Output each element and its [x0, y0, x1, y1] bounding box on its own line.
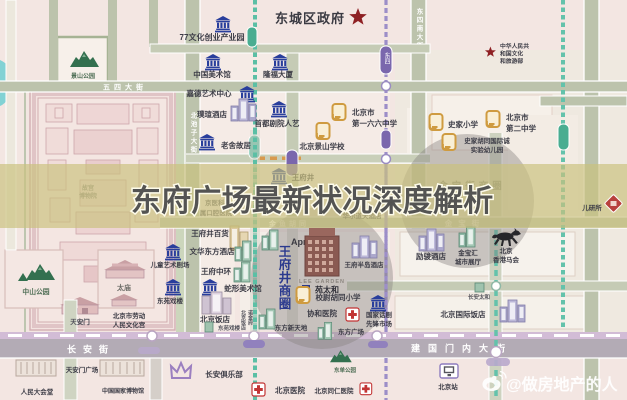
svg-text:北京景山学校: 北京景山学校	[300, 141, 345, 151]
svg-text:蛇形美术馆: 蛇形美术馆	[224, 283, 262, 293]
svg-text:圈: 圈	[279, 296, 292, 311]
svg-text:第一六六中学: 第一六六中学	[352, 118, 397, 128]
svg-text:第二中学: 第二中学	[506, 123, 536, 133]
svg-text:老舍故居: 老舍故居	[220, 140, 251, 150]
svg-text:长安太和: 长安太和	[468, 293, 491, 301]
svg-text:励骏酒店: 励骏酒店	[416, 251, 446, 261]
svg-text:校尉胡同小学: 校尉胡同小学	[316, 292, 361, 302]
svg-text:中华人民共: 中华人民共	[500, 42, 529, 50]
svg-text:景山公园: 景山公园	[70, 72, 95, 80]
svg-text:北京饭店: 北京饭店	[200, 314, 230, 324]
svg-text:史家小学: 史家小学	[448, 119, 478, 129]
svg-text:东府广场最新状况深度解析: 东府广场最新状况深度解析	[131, 184, 493, 218]
svg-text:王府井百货: 王府井百货	[191, 228, 229, 238]
svg-text:北京市: 北京市	[352, 107, 375, 117]
svg-text:文华东方酒店: 文华东方酒店	[190, 246, 235, 256]
svg-text:人民文化宫: 人民文化宫	[113, 320, 146, 329]
svg-text:人民大会堂: 人民大会堂	[21, 387, 54, 396]
svg-text:和国文化: 和国文化	[499, 50, 523, 58]
svg-text:北京医院: 北京医院	[275, 385, 305, 395]
svg-text:王: 王	[279, 245, 292, 259]
svg-text:金宝汇: 金宝汇	[457, 248, 478, 257]
svg-text:北京站: 北京站	[438, 382, 458, 391]
svg-text:儿童艺术剧场: 儿童艺术剧场	[150, 260, 191, 269]
svg-text:实验幼儿园: 实验幼儿园	[471, 145, 504, 154]
svg-text:北京市劳动: 北京市劳动	[113, 311, 146, 320]
svg-text:城市展厅: 城市展厅	[455, 257, 482, 266]
svg-text:@做房地产的人: @做房地产的人	[506, 375, 619, 394]
svg-text:史家胡同国际诚: 史家胡同国际诚	[464, 136, 510, 145]
svg-text:中国国家博物馆: 中国国家博物馆	[102, 387, 144, 395]
svg-text:王府中环: 王府中环	[201, 266, 231, 276]
svg-text:太庙: 太庙	[117, 283, 131, 292]
svg-text:商: 商	[279, 283, 292, 298]
svg-text:长安街: 长安街	[67, 344, 115, 355]
svg-text:国家话剧: 国家话剧	[366, 310, 393, 319]
svg-text:LEE GARDEN: LEE GARDEN	[299, 279, 345, 285]
svg-text:东方新天地: 东方新天地	[275, 323, 308, 332]
svg-text:北京: 北京	[500, 246, 514, 255]
svg-text:东单公园: 东单公园	[334, 366, 357, 374]
svg-text:五四大街: 五四大街	[103, 83, 147, 92]
svg-text:天安门广场: 天安门广场	[66, 365, 99, 374]
svg-text:北京饭店: 北京饭店	[240, 309, 247, 331]
svg-text:中山公园: 中山公园	[22, 287, 49, 296]
svg-text:东方广场: 东方广场	[338, 327, 365, 336]
svg-text:隆福大厦: 隆福大厦	[263, 69, 293, 79]
svg-text:儿研所: 儿研所	[581, 203, 602, 212]
svg-text:北京市: 北京市	[506, 112, 529, 122]
svg-text:王府半岛酒店: 王府半岛酒店	[345, 260, 385, 269]
svg-text:璞瑄酒店: 璞瑄酒店	[197, 109, 227, 119]
svg-text:中国美术馆: 中国美术馆	[193, 69, 231, 79]
svg-text:协和医院: 协和医院	[307, 308, 337, 318]
svg-text:诺金府: 诺金府	[247, 309, 254, 326]
svg-text:东四: 东四	[383, 51, 390, 64]
svg-text:井: 井	[279, 270, 292, 285]
svg-text:嘉德艺术中心: 嘉德艺术中心	[186, 88, 232, 98]
svg-text:府: 府	[279, 257, 292, 272]
svg-text:长安俱乐部: 长安俱乐部	[205, 369, 243, 379]
svg-text:首都剧院人艺: 首都剧院人艺	[255, 118, 300, 128]
svg-text:东苑戏楼: 东苑戏楼	[218, 324, 241, 332]
svg-text:和旅游部: 和旅游部	[499, 57, 523, 65]
svg-text:天安门: 天安门	[70, 317, 90, 326]
svg-text:北京同仁医院: 北京同仁医院	[315, 386, 355, 395]
svg-text:77文化创业产业园: 77文化创业产业园	[180, 32, 245, 42]
svg-text:香港马会: 香港马会	[493, 255, 520, 264]
svg-text:东城区政府: 东城区政府	[275, 11, 345, 26]
svg-text:北京国际饭店: 北京国际饭店	[441, 309, 486, 319]
svg-text:东苑戏楼: 东苑戏楼	[157, 296, 184, 305]
svg-text:先锋市场: 先锋市场	[366, 319, 393, 328]
